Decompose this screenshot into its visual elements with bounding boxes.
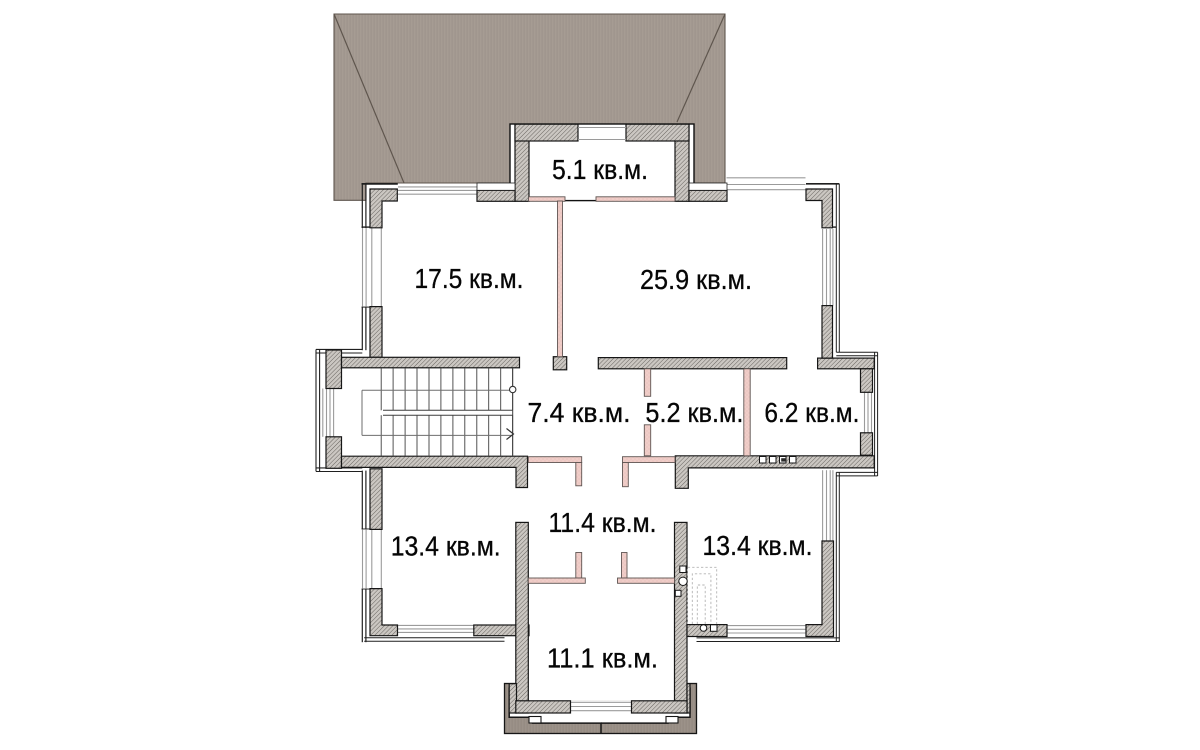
svg-text:5.2 кв.м.: 5.2 кв.м. [645,397,743,428]
svg-text:11.4 кв.м.: 11.4 кв.м. [549,507,657,538]
svg-text:17.5 кв.м.: 17.5 кв.м. [415,263,524,294]
svg-text:6.2 кв.м.: 6.2 кв.м. [764,397,859,428]
svg-text:11.1 кв.м.: 11.1 кв.м. [547,642,658,673]
svg-text:25.9 кв.м.: 25.9 кв.м. [640,264,752,295]
svg-text:5.1 кв.м.: 5.1 кв.м. [552,154,648,185]
svg-text:7.4 кв.м.: 7.4 кв.м. [528,397,631,428]
svg-text:13.4 кв.м.: 13.4 кв.м. [703,530,813,561]
svg-text:13.4 кв.м.: 13.4 кв.м. [391,530,501,561]
